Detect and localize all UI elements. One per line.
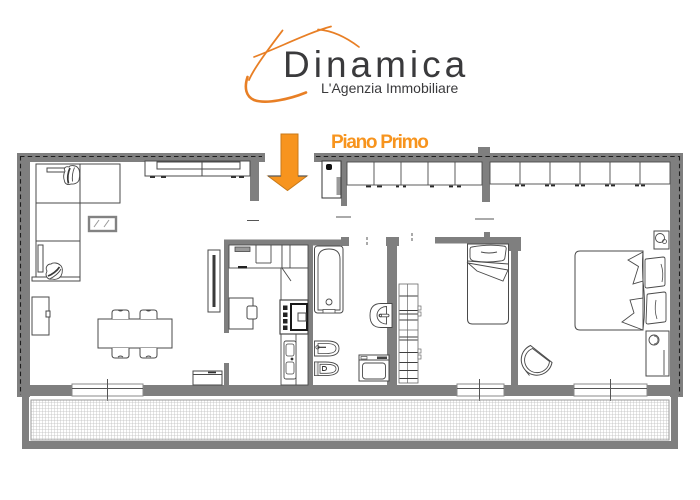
svg-text:Dinamica: Dinamica [283,44,469,85]
svg-text:Piano Primo: Piano Primo [331,132,428,153]
svg-text:L'Agenzia Immobiliare: L'Agenzia Immobiliare [321,80,459,96]
